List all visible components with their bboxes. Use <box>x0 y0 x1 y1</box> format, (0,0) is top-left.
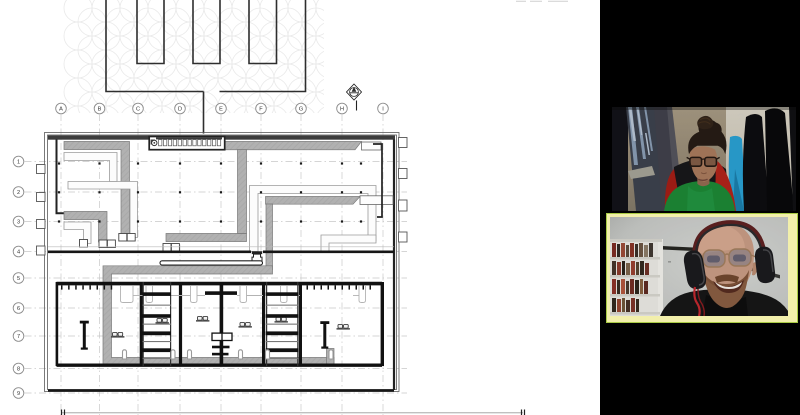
svg-text:D: D <box>178 107 182 113</box>
svg-text:5: 5 <box>17 276 20 282</box>
svg-text:4: 4 <box>17 250 20 256</box>
svg-text:9: 9 <box>17 391 20 397</box>
svg-text:E: E <box>219 107 223 113</box>
svg-text:G: G <box>299 107 303 113</box>
svg-text:F: F <box>259 107 263 113</box>
svg-text:A: A <box>59 107 63 113</box>
svg-text:B: B <box>98 107 102 113</box>
svg-text:H: H <box>340 107 344 113</box>
svg-text:8: 8 <box>17 367 20 373</box>
svg-text:6: 6 <box>17 306 20 312</box>
svg-text:C: C <box>136 107 140 113</box>
svg-text:2: 2 <box>17 190 20 196</box>
svg-text:3: 3 <box>17 220 20 226</box>
svg-text:7: 7 <box>17 334 20 340</box>
svg-text:1: 1 <box>17 160 20 166</box>
